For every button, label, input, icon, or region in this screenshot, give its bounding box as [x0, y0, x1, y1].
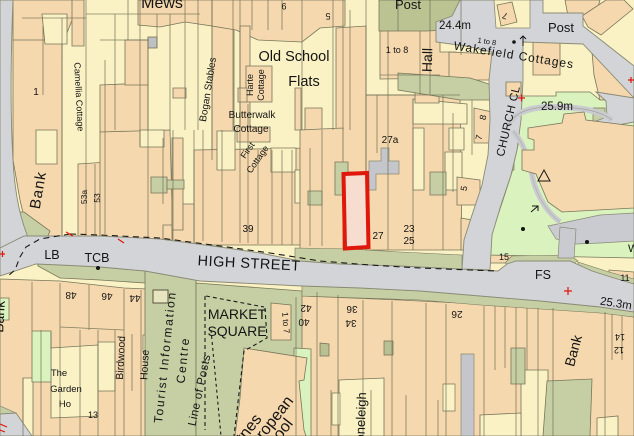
svg-text:23: 23: [403, 224, 415, 235]
svg-text:53a: 53a: [79, 190, 89, 204]
svg-text:Post: Post: [548, 20, 574, 35]
svg-text:11: 11: [620, 273, 629, 283]
svg-text:Old School: Old School: [259, 49, 330, 65]
svg-text:48: 48: [65, 289, 77, 300]
svg-text:9: 9: [281, 1, 286, 11]
svg-text:LB: LB: [44, 248, 59, 262]
svg-text:Harte: Harte: [245, 74, 255, 96]
svg-text:53: 53: [92, 193, 102, 203]
svg-text:Mews: Mews: [141, 0, 183, 12]
svg-text:The: The: [51, 368, 67, 379]
svg-text:12: 12: [614, 345, 624, 355]
svg-text:1 to 7: 1 to 7: [280, 312, 292, 334]
svg-text:1: 1: [33, 87, 39, 98]
svg-text:40: 40: [298, 316, 310, 327]
svg-text:FS: FS: [535, 268, 551, 282]
svg-text:Cottage: Cottage: [233, 124, 268, 135]
svg-text:36: 36: [346, 303, 358, 314]
svg-text:34: 34: [345, 317, 357, 328]
svg-text:Hall: Hall: [419, 48, 436, 73]
svg-text:Post: Post: [395, 0, 421, 12]
svg-text:Butterwalk: Butterwalk: [229, 110, 277, 121]
svg-text:5: 5: [325, 11, 330, 21]
svg-text:W: W: [628, 243, 634, 255]
svg-text:TCB: TCB: [85, 251, 110, 265]
svg-text:Cottage: Cottage: [256, 69, 266, 101]
svg-text:15: 15: [499, 252, 509, 262]
svg-text:25: 25: [403, 236, 415, 247]
svg-text:Garden: Garden: [50, 384, 82, 395]
svg-text:42: 42: [300, 302, 312, 313]
svg-text:46: 46: [101, 290, 113, 301]
svg-text:26: 26: [451, 308, 463, 319]
svg-text:MARKET: MARKET: [208, 306, 267, 322]
svg-text:44: 44: [129, 292, 141, 303]
svg-text:25.9m: 25.9m: [541, 101, 573, 113]
svg-text:Ho: Ho: [59, 399, 71, 410]
svg-text:Flats: Flats: [288, 74, 319, 90]
svg-text:13: 13: [88, 410, 98, 420]
svg-text:24.4m: 24.4m: [439, 20, 471, 32]
svg-text:27: 27: [372, 231, 384, 242]
svg-text:Birdwood: Birdwood: [114, 336, 128, 381]
svg-text:39: 39: [242, 224, 254, 235]
svg-text:SQUARE: SQUARE: [207, 323, 266, 339]
svg-text:House: House: [138, 349, 152, 380]
svg-text:27a: 27a: [382, 135, 399, 146]
svg-text:Stoneleigh: Stoneleigh: [352, 392, 369, 436]
svg-text:1 to 8: 1 to 8: [386, 45, 409, 55]
svg-text:14: 14: [615, 332, 625, 342]
